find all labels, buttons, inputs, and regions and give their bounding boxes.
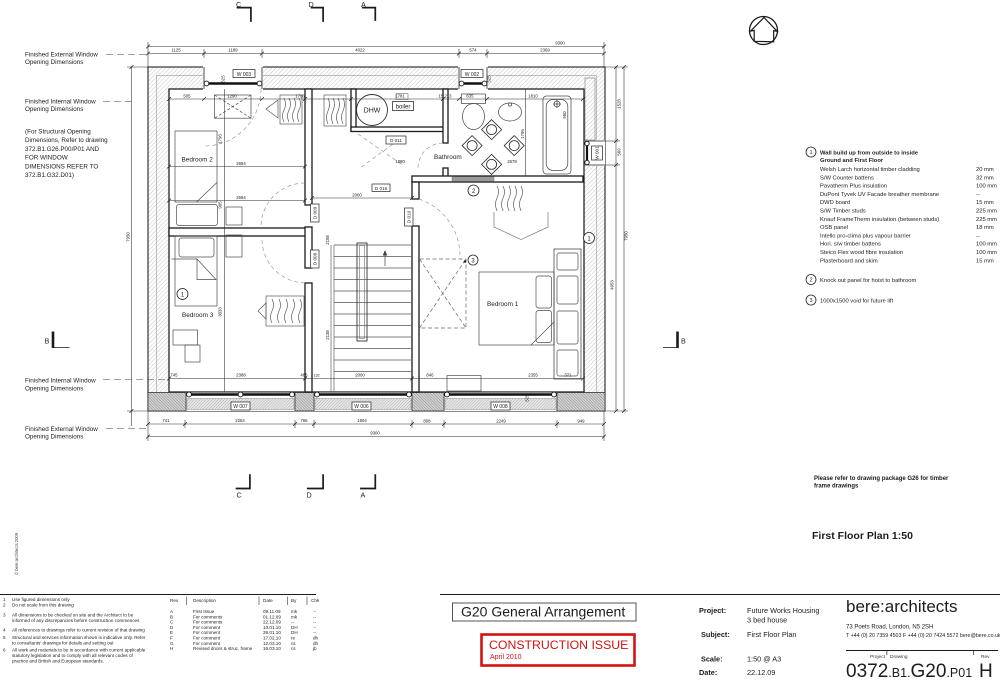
svg-text:15 213: 15 213 xyxy=(438,94,452,99)
svg-text:09.11.09: 09.11.09 xyxy=(263,609,281,614)
svg-text:100 mm: 100 mm xyxy=(976,250,997,256)
svg-text:3: 3 xyxy=(809,298,812,304)
svg-text:A: A xyxy=(361,491,366,500)
svg-text:D 008: D 008 xyxy=(313,252,318,265)
svg-text:CONSTRUCTION ISSUE: CONSTRUCTION ISSUE xyxy=(489,638,628,652)
svg-text:D 011: D 011 xyxy=(390,138,402,143)
svg-text:B: B xyxy=(45,337,50,346)
svg-text:Rev: Rev xyxy=(170,598,179,603)
svg-text:1880: 1880 xyxy=(395,159,405,164)
svg-text:W 006: W 006 xyxy=(354,404,369,410)
svg-text:Intello pro-clima plus vapour: Intello pro-clima plus vapour barrier xyxy=(820,233,911,239)
svg-text:F: F xyxy=(170,636,173,641)
svg-text:Do not scale from this drawing: Do not scale from this drawing xyxy=(12,603,74,608)
svg-text:1781: 1781 xyxy=(395,94,405,99)
svg-text:3033: 3033 xyxy=(218,307,223,317)
svg-text:20 mm: 20 mm xyxy=(976,167,994,173)
svg-text:DHW: DHW xyxy=(364,108,381,115)
svg-text:1796: 1796 xyxy=(218,134,223,144)
svg-text:mk: mk xyxy=(291,609,298,614)
svg-text:13.01.10: 13.01.10 xyxy=(263,625,281,630)
svg-text:Bedroom 1: Bedroom 1 xyxy=(487,301,519,308)
svg-text:2158: 2158 xyxy=(325,235,330,245)
svg-text:73 Poets Road, London, N5 2SH: 73 Poets Road, London, N5 2SH xyxy=(846,625,933,631)
svg-text:OSB panel: OSB panel xyxy=(820,225,848,231)
svg-text:D: D xyxy=(309,0,314,9)
svg-text:Opening Dimensions: Opening Dimensions xyxy=(25,386,83,393)
svg-text:28.01.10: 28.01.10 xyxy=(263,630,281,635)
svg-text:C: C xyxy=(236,0,241,9)
svg-text:Knauf FrameTherm insulation (b: Knauf FrameTherm insulation (between stu… xyxy=(820,217,939,223)
svg-text:4022: 4022 xyxy=(355,48,365,53)
svg-text:100 mm: 100 mm xyxy=(976,184,997,190)
svg-text:808: 808 xyxy=(423,419,431,424)
svg-text:18 mm: 18 mm xyxy=(976,225,994,231)
svg-text:2254: 2254 xyxy=(235,418,245,423)
svg-text:371: 371 xyxy=(564,373,572,378)
svg-text:2388: 2388 xyxy=(236,373,246,378)
svg-text:2694: 2694 xyxy=(236,195,246,200)
svg-text:574: 574 xyxy=(469,48,477,53)
svg-text:Hori. s/w timber battens: Hori. s/w timber battens xyxy=(820,242,881,248)
svg-text:informed of any discrepancies: informed of any discrepancies before con… xyxy=(12,618,140,623)
svg-text:W 007: W 007 xyxy=(233,404,248,410)
svg-text:FOR WINDOW: FOR WINDOW xyxy=(25,155,68,162)
svg-text:372.B1.G32.D01): 372.B1.G32.D01) xyxy=(25,172,74,179)
svg-text:7950: 7950 xyxy=(624,231,629,241)
svg-text:W 003: W 003 xyxy=(237,72,252,78)
svg-text:A: A xyxy=(361,0,366,9)
svg-text:1706: 1706 xyxy=(295,94,305,99)
svg-text:All work and materials to be i: All work and materials to be in accordan… xyxy=(12,648,146,653)
svg-text:Opening Dimensions: Opening Dimensions xyxy=(25,106,83,113)
svg-text:--: -- xyxy=(313,620,317,625)
svg-text:jb: jb xyxy=(312,646,317,651)
svg-text:766: 766 xyxy=(300,418,308,423)
svg-text:B: B xyxy=(170,614,173,619)
svg-text:Opening Dimensions: Opening Dimensions xyxy=(25,434,83,441)
svg-text:All references to drawings ref: All references to drawings refer to curr… xyxy=(12,628,145,633)
svg-text:--: -- xyxy=(313,609,317,614)
svg-text:First Floor Plan: First Floor Plan xyxy=(747,630,796,639)
svg-text:--: -- xyxy=(313,630,317,635)
svg-text:For comment: For comment xyxy=(193,625,221,630)
svg-text:Wall build up from outside to: Wall build up from outside to inside xyxy=(820,151,919,157)
svg-text:practice and British and Europ: practice and British and European standa… xyxy=(12,659,104,664)
svg-text:boiler: boiler xyxy=(396,105,411,111)
svg-text:Future Works Housing: Future Works Housing xyxy=(747,606,819,615)
svg-text:2694: 2694 xyxy=(236,161,246,166)
svg-text:9300: 9300 xyxy=(555,41,565,46)
svg-text:W 001: W 001 xyxy=(595,146,600,160)
svg-text:465: 465 xyxy=(300,373,308,378)
svg-text:G: G xyxy=(170,641,174,646)
svg-text:First Floor Plan 1:50: First Floor Plan 1:50 xyxy=(812,530,913,542)
svg-text:Rev: Rev xyxy=(981,654,990,660)
svg-text:First Issue: First Issue xyxy=(193,609,215,614)
svg-text:Steico Flex wood fibre insulat: Steico Flex wood fibre insulation xyxy=(820,250,903,256)
svg-text:3: 3 xyxy=(3,613,6,618)
svg-text:1: 1 xyxy=(3,597,6,602)
svg-text:6: 6 xyxy=(3,648,6,653)
svg-text:745: 745 xyxy=(170,373,178,378)
svg-text:Project:: Project: xyxy=(699,606,726,615)
svg-text:905: 905 xyxy=(218,201,223,209)
svg-text:525: 525 xyxy=(221,75,226,83)
svg-text:G20 General Arrangement: G20 General Arrangement xyxy=(461,604,625,620)
svg-text:By: By xyxy=(291,598,297,603)
svg-text:H: H xyxy=(170,646,173,651)
svg-text:741: 741 xyxy=(162,418,170,423)
svg-text:cs: cs xyxy=(291,641,296,646)
svg-text:Ground and First Floor: Ground and First Floor xyxy=(820,158,884,164)
svg-text:S/W Counter battens: S/W Counter battens xyxy=(820,175,874,181)
svg-text:DIMENSIONS REFER TO: DIMENSIONS REFER TO xyxy=(25,163,98,170)
svg-text:2369: 2369 xyxy=(540,48,550,53)
svg-text:Date: Date xyxy=(263,598,273,603)
svg-text:2355: 2355 xyxy=(528,373,538,378)
svg-text:Bathroom: Bathroom xyxy=(434,154,462,161)
svg-text:Use figured dimensions only: Use figured dimensions only xyxy=(12,597,70,602)
svg-text:All dimensions to be checked o: All dimensions to be checked on site and… xyxy=(12,613,134,618)
svg-text:Project: Project xyxy=(870,654,886,660)
svg-text:949: 949 xyxy=(577,419,585,424)
svg-text:For comment: For comment xyxy=(193,630,221,635)
svg-text:(For Structural Opening: (For Structural Opening xyxy=(25,129,91,136)
svg-text:2: 2 xyxy=(809,278,812,284)
svg-text:2: 2 xyxy=(3,603,6,608)
svg-text:H: H xyxy=(979,661,993,680)
svg-text:1:50 @ A3: 1:50 @ A3 xyxy=(747,655,781,664)
svg-text:DH: DH xyxy=(291,630,298,635)
svg-text:16.03.10: 16.03.10 xyxy=(263,646,281,651)
svg-text:© bere:architects 2009: © bere:architects 2009 xyxy=(14,532,19,575)
svg-text:--: -- xyxy=(313,614,317,619)
svg-text:22.12.09: 22.12.09 xyxy=(263,620,281,625)
svg-text:Dimensions, Refer to drawing: Dimensions, Refer to drawing xyxy=(25,137,108,144)
svg-text:Subject:: Subject: xyxy=(701,630,730,639)
svg-text:3 bed house: 3 bed house xyxy=(747,616,787,625)
svg-text:01.12.09: 01.12.09 xyxy=(263,614,281,619)
svg-text:C: C xyxy=(237,491,242,500)
svg-text:1: 1 xyxy=(809,150,812,156)
svg-text:For comment: For comment xyxy=(193,641,221,646)
svg-text:E: E xyxy=(170,630,173,635)
svg-text:225 mm: 225 mm xyxy=(976,217,997,223)
svg-text:2000: 2000 xyxy=(352,193,362,198)
svg-text:B: B xyxy=(681,337,686,346)
svg-text:--: -- xyxy=(313,625,317,630)
svg-text:D 016: D 016 xyxy=(375,186,388,191)
svg-text:Finished External Window: Finished External Window xyxy=(25,52,98,59)
svg-text:7950: 7950 xyxy=(126,232,131,242)
svg-text:22.12.09: 22.12.09 xyxy=(747,668,775,677)
svg-text:17.02.10: 17.02.10 xyxy=(263,636,281,641)
svg-text:D 010: D 010 xyxy=(407,210,412,223)
svg-text:to consultants' drawings for d: to consultants' drawings for details and… xyxy=(12,641,114,646)
svg-text:mk: mk xyxy=(291,614,298,619)
svg-text:2678: 2678 xyxy=(507,159,517,164)
svg-text:Drawing: Drawing xyxy=(890,654,908,660)
svg-text:569: 569 xyxy=(617,148,622,156)
svg-text:dh: dh xyxy=(313,636,319,641)
svg-text:bere:architects: bere:architects xyxy=(846,597,958,616)
svg-text:Opening Dimensions: Opening Dimensions xyxy=(25,59,83,66)
svg-text:--: -- xyxy=(976,233,980,239)
svg-text:Finished Internal Window: Finished Internal Window xyxy=(25,377,96,384)
svg-text:DuPont Tyvek UV Facade breathe: DuPont Tyvek UV Facade breather membrane xyxy=(820,192,939,198)
svg-text:5: 5 xyxy=(3,635,6,640)
svg-text:525: 525 xyxy=(525,394,530,402)
svg-text:1810: 1810 xyxy=(528,94,538,99)
svg-text:1125: 1125 xyxy=(171,48,181,53)
svg-text:Plasterboard and skim: Plasterboard and skim xyxy=(820,258,878,264)
svg-text:W 008: W 008 xyxy=(493,404,508,410)
svg-text:dh: dh xyxy=(313,641,319,646)
svg-text:2138: 2138 xyxy=(325,330,330,340)
svg-text:Structural and services inform: Structural and services information show… xyxy=(12,635,146,640)
svg-text:Bedroom 2: Bedroom 2 xyxy=(182,157,214,164)
svg-text:372.B1.G26.P00/P01 AND: 372.B1.G26.P00/P01 AND xyxy=(25,146,100,153)
svg-text:2000: 2000 xyxy=(355,373,365,378)
svg-text:Date:: Date: xyxy=(699,668,717,677)
svg-text:12.03.10: 12.03.10 xyxy=(263,641,281,646)
svg-text:re: re xyxy=(291,636,296,641)
svg-text:DWD board: DWD board xyxy=(820,200,850,206)
svg-text:Scale:: Scale: xyxy=(701,655,723,664)
svg-text:100 mm: 100 mm xyxy=(976,242,997,248)
svg-text:D: D xyxy=(307,491,312,500)
svg-text:Pavatherm Plus insulation: Pavatherm Plus insulation xyxy=(820,184,887,190)
svg-text:Knock out panel for hoist to b: Knock out panel for hoist to bathroom xyxy=(820,278,917,284)
svg-text:Bedroom 3: Bedroom 3 xyxy=(182,312,214,319)
svg-text:April 2010: April 2010 xyxy=(490,654,522,661)
svg-text:Finished Internal Window: Finished Internal Window xyxy=(25,99,96,106)
svg-text:846: 846 xyxy=(426,373,434,378)
svg-text:T +44 (0) 20 7359 4503 F +44: T +44 (0) 20 7359 4503 F +44 (0) 20 7424… xyxy=(846,633,1000,639)
svg-text:2249: 2249 xyxy=(496,419,506,424)
svg-text:--: -- xyxy=(976,192,980,198)
svg-text:525: 525 xyxy=(487,75,492,83)
svg-text:4953: 4953 xyxy=(610,280,615,290)
svg-text:Revised doors & struc. frame: Revised doors & struc. frame xyxy=(193,646,253,651)
svg-text:For comment: For comment xyxy=(193,636,221,641)
svg-text:DH: DH xyxy=(291,625,298,630)
svg-text:For comments: For comments xyxy=(193,620,223,625)
svg-text:--: -- xyxy=(291,620,295,625)
svg-text:15 mm: 15 mm xyxy=(976,200,994,206)
svg-text:Description: Description xyxy=(193,598,216,603)
svg-text:statutory legislation and to c: statutory legislation and to comply with… xyxy=(12,653,134,658)
svg-text:Finished External Window: Finished External Window xyxy=(25,426,98,433)
svg-text:Welsh Larch horizontal timber: Welsh Larch horizontal timber cladding xyxy=(820,167,920,173)
svg-text:1528: 1528 xyxy=(617,99,622,109)
svg-text:frame drawings: frame drawings xyxy=(814,484,859,490)
svg-text:32 mm: 32 mm xyxy=(976,175,994,181)
svg-text:4: 4 xyxy=(3,628,6,633)
svg-text:635: 635 xyxy=(466,94,474,99)
svg-text:132: 132 xyxy=(313,374,319,378)
svg-text:1189: 1189 xyxy=(228,48,238,53)
svg-text:950: 950 xyxy=(562,111,567,119)
svg-text:Chk: Chk xyxy=(311,598,320,603)
svg-text:1290: 1290 xyxy=(227,94,237,99)
svg-text:1000x1500 void for future lift: 1000x1500 void for future lift xyxy=(820,299,894,305)
svg-text:1796: 1796 xyxy=(520,129,525,139)
svg-text:1904: 1904 xyxy=(357,418,367,423)
svg-text:15 mm: 15 mm xyxy=(976,258,994,264)
svg-text:cs: cs xyxy=(291,646,296,651)
svg-text:W 002: W 002 xyxy=(465,72,480,78)
svg-text:S/W Timber studs: S/W Timber studs xyxy=(820,209,866,215)
svg-text:D 009: D 009 xyxy=(313,206,318,219)
svg-text:For comments: For comments xyxy=(193,614,223,619)
svg-text:9300: 9300 xyxy=(370,431,380,436)
svg-text:505: 505 xyxy=(183,94,191,99)
svg-text:225 mm: 225 mm xyxy=(976,209,997,215)
svg-text:Please refer to drawing packag: Please refer to drawing package G26 for … xyxy=(814,476,949,482)
